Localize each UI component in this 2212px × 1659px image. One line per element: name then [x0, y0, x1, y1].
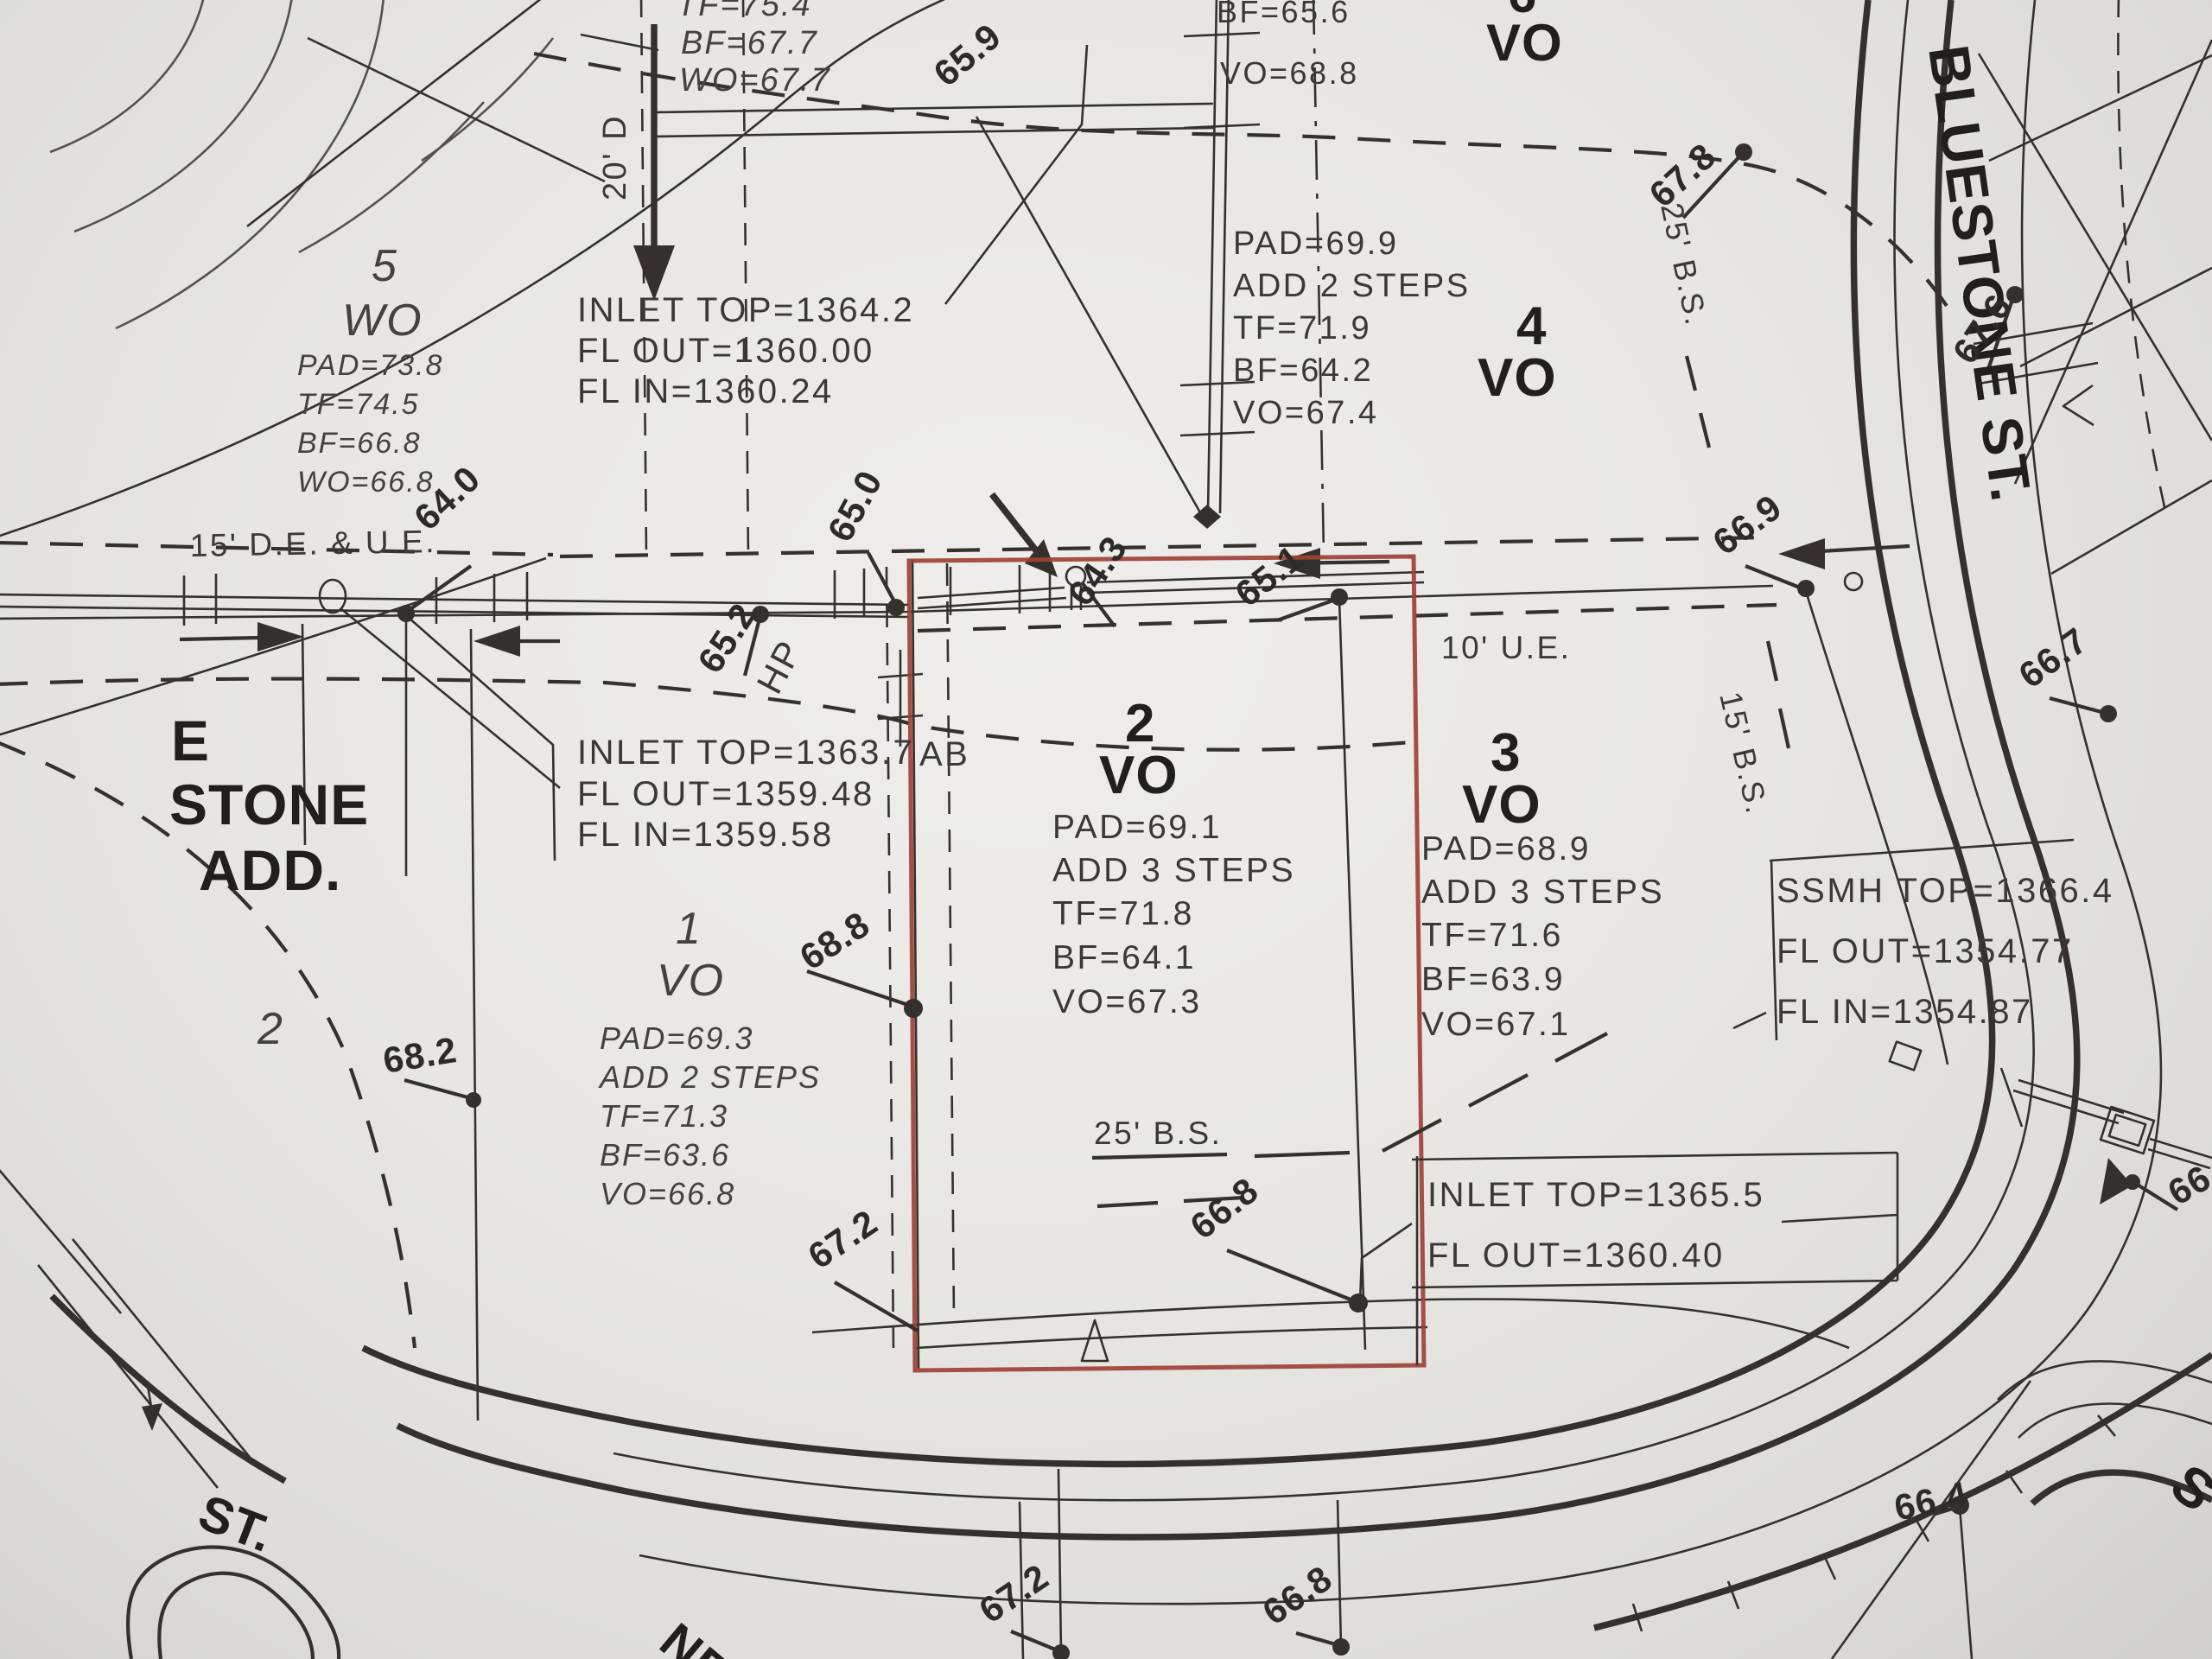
- lot3-pad: PAD=68.9: [1421, 830, 1591, 868]
- lot2-vo: VO=67.3: [1052, 983, 1202, 1020]
- lot4-number: 4: [1516, 296, 1547, 356]
- lot2-pad: PAD=69.1: [1052, 809, 1222, 846]
- inlet1-flin: FL IN=1360.24: [577, 372, 834, 410]
- lot5-type: WO: [342, 296, 423, 346]
- subdiv-add: ADD.: [199, 838, 341, 902]
- lot5-pad: PAD=73.8: [297, 349, 443, 382]
- lot1-number: 1: [676, 904, 702, 954]
- lot6-vo-val: VO=68.8: [1220, 55, 1359, 91]
- street-s: S: [2159, 1452, 2212, 1524]
- flow-arrow-left3-icon: [1778, 538, 1825, 569]
- spot-66-7: 66.7: [2012, 620, 2095, 696]
- street-st: ST.: [191, 1484, 281, 1563]
- lot6-bf: BF=65.6: [1217, 0, 1351, 29]
- elev-bf-67-7: BF=67.7: [681, 25, 818, 61]
- easement-10ue: 10' U.E.: [1441, 630, 1571, 665]
- subdiv-e: E: [171, 709, 210, 772]
- lot3-number: 3: [1491, 723, 1521, 783]
- ssmh-top: SSMH TOP=1366.4: [1777, 872, 2114, 910]
- annotations-layer: TF=75.4BF=67.7WO=67.75WOPAD=73.8TF=74.5B…: [169, 0, 2212, 1659]
- inlet2-flout: FL OUT=1359.48: [577, 775, 874, 813]
- lot1-type: VO: [657, 956, 725, 1006]
- easement-20d: 20' D: [597, 114, 633, 200]
- lot4-pad: PAD=69.9: [1233, 226, 1398, 262]
- inlet-box-inner-icon: [2109, 1115, 2145, 1146]
- ssmh-flout: FL OUT=1354.77: [1777, 932, 2074, 970]
- inlet3-flout: FL OUT=1360.40: [1427, 1236, 1725, 1274]
- lot1-tf: TF=71.3: [600, 1098, 728, 1134]
- setback-25bs-h: 25' B.S.: [1094, 1116, 1222, 1151]
- subdiv-stone: STONE: [169, 772, 369, 836]
- spot-65-0: 65.0: [819, 463, 890, 548]
- bottom-street: [0, 1165, 2212, 1659]
- lot2-number: 2: [1125, 694, 1155, 753]
- spot-65-9: 65.9: [926, 16, 1009, 94]
- setback-15bs: 15' B.S.: [1713, 689, 1776, 818]
- marker-ab: AB: [919, 735, 969, 773]
- lot4-add: ADD 2 STEPS: [1233, 268, 1471, 304]
- lot4-bf: BF=64.2: [1233, 353, 1373, 389]
- lot4-vo: VO=67.4: [1233, 395, 1379, 431]
- flow-arrow-left-icon: [474, 626, 520, 657]
- lot5-bf: BF=66.8: [297, 427, 421, 460]
- lot2-tf: TF=71.8: [1052, 895, 1194, 932]
- ssmh-flin: FL IN=1354.87: [1777, 993, 2033, 1031]
- lot4-type: VO: [1478, 348, 1557, 408]
- inlet3-top: INLET TOP=1365.5: [1427, 1176, 1764, 1214]
- spot-66-9: 66.9: [1706, 486, 1789, 563]
- lot3-tf: TF=71.6: [1421, 917, 1563, 954]
- spot-68-2: 68.2: [380, 1029, 460, 1081]
- lot4-tf: TF=71.9: [1233, 310, 1371, 346]
- lot1-bf: BF=63.6: [600, 1137, 730, 1173]
- inlet1-flout: FL OUT=1360.00: [577, 332, 874, 370]
- slope-triangle-icon: [1082, 1320, 1108, 1361]
- valve-symbol-icon: [320, 580, 346, 613]
- lot2-bf: BF=64.1: [1052, 939, 1196, 976]
- lot6-type: VO: [1486, 14, 1563, 72]
- lot5-wo: WO=66.8: [297, 466, 435, 499]
- high-point: HP: [748, 632, 810, 700]
- spot-66-8-b: 66.8: [1255, 1558, 1339, 1633]
- manhole-box-symbol-icon: [1890, 1042, 1921, 1071]
- lot3-type: VO: [1462, 775, 1541, 835]
- lot1-add: ADD 2 STEPS: [598, 1059, 821, 1095]
- lot3-vo: VO=67.1: [1421, 1006, 1571, 1043]
- inlet1-top: INLET TOP=1364.2: [577, 291, 914, 329]
- plat-drawing: TF=75.4BF=67.7WO=67.75WOPAD=73.8TF=74.5B…: [0, 0, 2212, 1659]
- elev-tf-75-4: TF=75.4: [677, 0, 812, 23]
- street-ne: NE: [650, 1612, 741, 1659]
- lot1-pad: PAD=69.3: [600, 1020, 753, 1056]
- lot2w-number: 2: [257, 1004, 284, 1054]
- spot-66-8-a: 66.8: [1183, 1169, 1267, 1247]
- lot5-number: 5: [372, 241, 398, 291]
- lot1-vo: VO=66.8: [600, 1176, 735, 1211]
- lot3-add: ADD 3 STEPS: [1421, 874, 1664, 911]
- spot-67-2-a: 67.2: [801, 1202, 885, 1277]
- inlet2-top: INLET TOP=1363.7: [577, 734, 914, 772]
- spot-66-4: 66.4: [1891, 1473, 1972, 1529]
- inlet2-flin: FL IN=1359.58: [577, 816, 834, 854]
- inlet-box-symbol-icon: [2101, 1107, 2154, 1154]
- spot-67-2-b: 67.2: [972, 1556, 1056, 1631]
- lot5-tf: TF=74.5: [297, 388, 420, 421]
- elev-wo-67-7: WO=67.7: [679, 62, 831, 99]
- setback-25bs-rot: 25' B.S.: [1654, 200, 1714, 329]
- curb-node-icon: [1845, 573, 1862, 590]
- spot-68-8: 68.8: [792, 903, 877, 977]
- lot3-bf: BF=63.9: [1421, 961, 1565, 998]
- lot2-add: ADD 3 STEPS: [1052, 852, 1295, 889]
- easement-15due: 15' D.E. & U.E.: [189, 524, 436, 563]
- lot2-type: VO: [1099, 746, 1179, 805]
